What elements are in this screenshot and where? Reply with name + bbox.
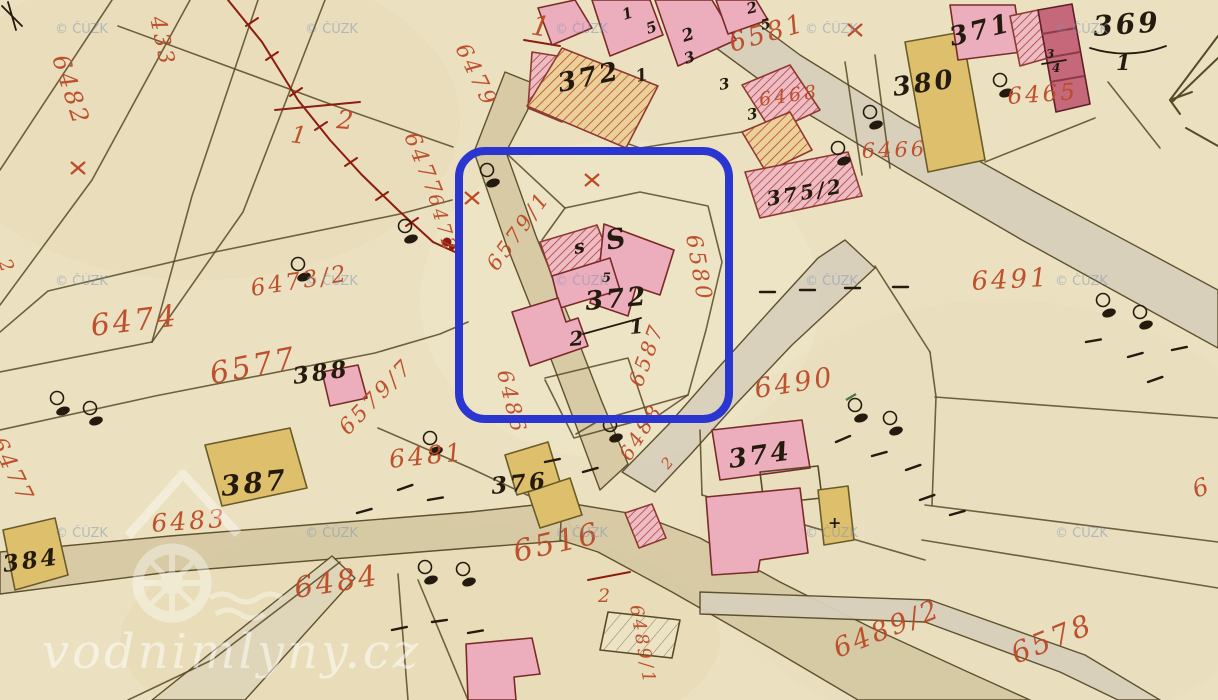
- cuzk-watermark: © ČÚZK: [305, 525, 358, 541]
- site-watermark-text: vodnimlyny.cz: [42, 624, 421, 680]
- cuzk-watermark: © ČÚZK: [555, 525, 608, 541]
- parcel-number-label: 2: [597, 585, 613, 607]
- parcel-number-label: 6465: [1007, 79, 1079, 110]
- parcel-number-label: 1: [289, 120, 311, 150]
- cuzk-watermark: © ČÚZK: [805, 21, 858, 37]
- cuzk-watermark: © ČÚZK: [1055, 525, 1108, 541]
- cuzk-watermark: © ČÚZK: [1055, 21, 1108, 37]
- cuzk-watermark: © ČÚZK: [55, 273, 108, 289]
- cuzk-watermark: © ČÚZK: [805, 525, 858, 541]
- parcel-number-label: 2: [334, 105, 357, 137]
- cuzk-watermark: © ČÚZK: [55, 21, 108, 37]
- house-number-label: 1: [628, 314, 647, 339]
- house-number-label: 3: [1046, 47, 1057, 61]
- parcel-number-label: 6491: [971, 263, 1051, 297]
- map-screenshot: 6482433126479647764721658164686466646564…: [0, 0, 1218, 700]
- cuzk-watermark: © ČÚZK: [305, 21, 358, 37]
- house-number-label: 387: [219, 463, 290, 503]
- house-number-label: 1: [1116, 50, 1134, 75]
- map-canvas[interactable]: 6482433126479647764721658164686466646564…: [0, 0, 1218, 700]
- cuzk-watermark: © ČÚZK: [1055, 273, 1108, 289]
- cuzk-watermark: © ČÚZK: [805, 273, 858, 289]
- parcel-number-label: 6466: [861, 137, 927, 163]
- cuzk-watermark: © ČÚZK: [305, 273, 358, 289]
- cuzk-watermark: © ČÚZK: [55, 525, 108, 541]
- cuzk-watermark: © ČÚZK: [555, 21, 608, 37]
- house-number-label: 2: [567, 326, 587, 351]
- house-number-label: 4: [1052, 61, 1063, 75]
- cuzk-watermark: © ČÚZK: [555, 273, 608, 289]
